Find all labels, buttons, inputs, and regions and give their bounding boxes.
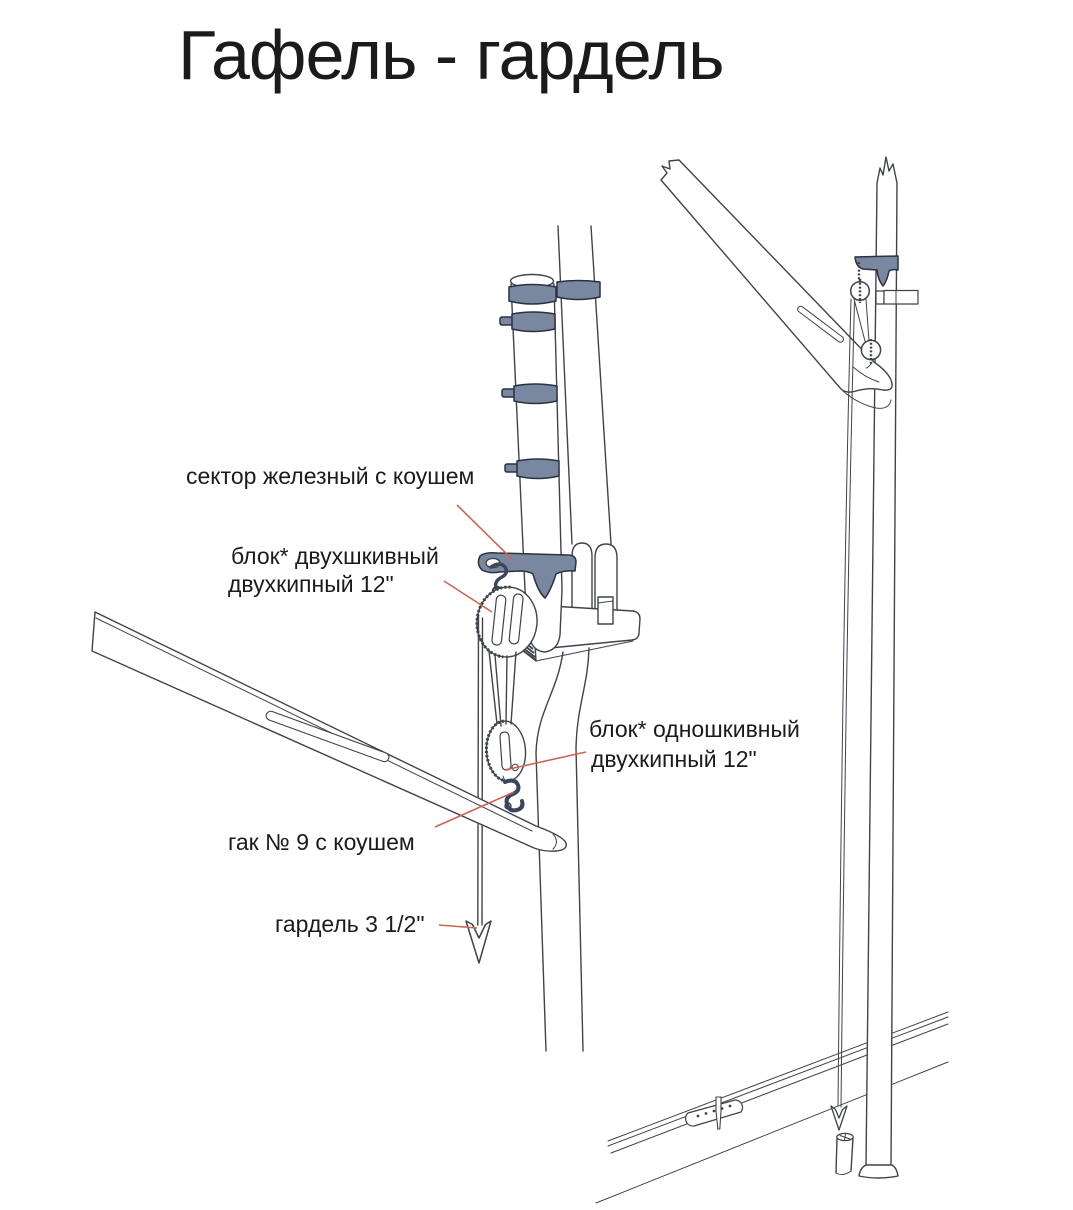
halyard-rope [838,299,855,1107]
mast-base-collar [859,1165,898,1178]
mast [866,157,897,1166]
page-title: Гафель - гардель [178,16,878,94]
band [517,459,559,479]
tackle-ropes [489,651,516,726]
rigging-diagram [0,0,1073,1210]
gaff-spar-side [661,160,892,392]
gaff-inner-line [96,618,532,831]
belaying-pin [716,1097,721,1129]
halyard-fall-rope [478,615,483,925]
label-double-block-line1: блок* двухшкивный [231,543,439,570]
band [557,281,600,300]
mast-bracket [876,291,884,304]
label-single-block-line2: двухкипный 12" [591,746,757,773]
leader-sector [457,505,514,561]
label-iron-sector: сектор железный с коушем [186,463,474,490]
bitt-post [836,1133,853,1174]
diagram-page: Гафель - гардель сектор железный с коуше… [0,0,1073,1210]
sheave-slot [500,732,512,771]
leader-double-block [444,581,492,612]
band [514,384,557,404]
label-double-block-line2: двухкипный 12" [228,571,394,598]
band [512,312,555,332]
band [509,285,556,305]
lower-mast-edge [576,648,589,1051]
mast-bracket [884,291,918,305]
full-mast-view [596,157,948,1203]
label-hook: гак № 9 с коушем [228,829,415,856]
label-single-block-line1: блок* одношкивный [589,716,800,743]
tackle-ropes [854,299,869,341]
pin-rail-plate [686,1100,743,1126]
mast-right-edge [591,226,611,544]
label-halyard: гардель 3 1/2" [275,911,425,938]
single-block [484,720,527,783]
halyard-arrowhead [831,1106,847,1130]
